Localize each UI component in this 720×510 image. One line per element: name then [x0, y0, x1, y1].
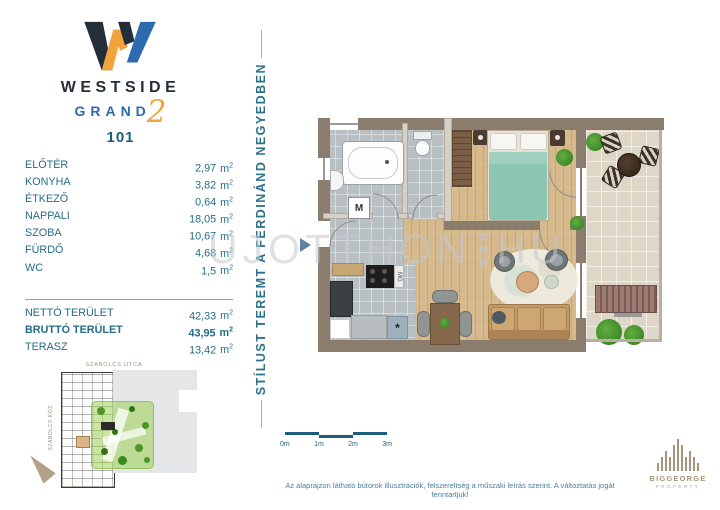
- dining-chair-top: [432, 290, 458, 303]
- total-row: NETTÓ TERÜLET 42,33m2: [25, 307, 233, 324]
- plant-bedroom: [556, 149, 573, 166]
- total-row: TERASZ 13,42m2: [25, 341, 233, 358]
- toilet-bowl: [415, 140, 430, 156]
- neighbor-block-notch: [179, 390, 198, 412]
- total-row: BRUTTÓ TERÜLET 43,95m2: [25, 324, 233, 341]
- washing-machine: M: [348, 197, 370, 219]
- room-value: 10,67m2: [189, 227, 233, 244]
- westside-w-logo-icon: [77, 20, 165, 76]
- unit-number: 101: [18, 129, 223, 146]
- street-label-top: SZABOLCS UTCA: [64, 362, 164, 368]
- developer-logo: BIGGEORGE PROPERTY: [640, 437, 716, 489]
- wardrobe: [452, 130, 472, 187]
- terrace-edge-right: [659, 130, 662, 342]
- brand-series-number: 2: [147, 94, 167, 130]
- kitchen-cabinet: [330, 319, 350, 339]
- table-divider: [25, 299, 233, 300]
- armchair-left: [494, 251, 515, 272]
- scale-label: 2m: [348, 441, 358, 448]
- highlighted-unit: [76, 436, 90, 448]
- tree-dot: [144, 457, 150, 463]
- tree-dot: [142, 422, 149, 429]
- plant-living: [570, 216, 584, 230]
- total-value: 42,33m2: [189, 307, 233, 324]
- bathtub-drain: [385, 160, 389, 164]
- flyer-page: WESTSIDE GRAND2 101 ELŐTÉR 2,97m2 KONYHA…: [0, 0, 720, 510]
- room-label: ELŐTÉR: [25, 159, 68, 176]
- scale-label: 1m: [314, 441, 324, 448]
- kitchen-shelf: [332, 263, 364, 276]
- pillow-left: [490, 133, 517, 150]
- developer-subtitle: PROPERTY: [640, 484, 716, 489]
- room-label: NAPPALI: [25, 210, 70, 227]
- plant-dining-table: [440, 318, 450, 328]
- room-label: FÜRDŐ: [25, 244, 63, 261]
- motto-line-bottom: [261, 400, 262, 428]
- scale-bar: 0m1m2m3m: [280, 432, 392, 448]
- tree-dot: [97, 407, 105, 415]
- fridge: *: [387, 316, 408, 339]
- room-row: NAPPALI 18,05m2: [25, 210, 233, 227]
- brand-series: GRAND: [74, 103, 150, 119]
- bed: [487, 130, 549, 221]
- room-row: KONYHA 3,82m2: [25, 176, 233, 193]
- room-list: ELŐTÉR 2,97m2 KONYHA 3,82m2 ÉTKEZŐ 0,64m…: [25, 159, 233, 279]
- watermark-arrow-icon: [300, 238, 311, 252]
- courtyard-garden: [91, 401, 154, 469]
- total-value: 43,95m2: [188, 324, 233, 341]
- bed-blanket: [489, 152, 547, 220]
- street-label-left: SZABOLCS KÖZ: [48, 405, 54, 451]
- dining-chair-left: [417, 311, 430, 337]
- tall-cabinet: [330, 281, 353, 317]
- developer-logo-icon: [640, 437, 716, 471]
- total-label: BRUTTÓ TERÜLET: [25, 324, 123, 341]
- brand-name: WESTSIDE: [18, 79, 223, 97]
- room-value: 4,68m2: [195, 244, 233, 261]
- room-value: 1,5m2: [201, 262, 233, 279]
- terrace-edge-bottom: [586, 339, 662, 342]
- north-arrow-icon: [24, 450, 56, 483]
- totals-list: NETTÓ TERÜLET 42,33m2 BRUTTÓ TERÜLET 43,…: [25, 307, 233, 358]
- total-label: NETTÓ TERÜLET: [25, 307, 114, 324]
- brand-block: WESTSIDE GRAND2 101: [18, 20, 223, 146]
- kitchen-counter: [351, 315, 387, 339]
- room-row: WC 1,5m2: [25, 262, 233, 279]
- room-label: WC: [25, 262, 43, 279]
- terrace-bench: [595, 285, 657, 313]
- coffee-table: [516, 271, 539, 293]
- tree-dot: [101, 448, 108, 455]
- armchair-right: [545, 249, 568, 271]
- room-row: FÜRDŐ 4,68m2: [25, 244, 233, 261]
- sofa-pillow: [492, 311, 506, 324]
- room-value: 2,97m2: [195, 159, 233, 176]
- scale-label: 0m: [280, 441, 290, 448]
- pillow-right: [520, 133, 547, 150]
- brand-subtitle: GRAND2: [18, 98, 223, 128]
- room-label: ÉTKEZŐ: [25, 193, 68, 210]
- floorplan: M MG *: [318, 113, 664, 356]
- stove: [366, 265, 394, 288]
- total-value: 13,42m2: [189, 341, 233, 358]
- scale-label: 3m: [382, 441, 392, 448]
- tree-dot: [135, 444, 143, 452]
- room-row: SZOBA 10,67m2: [25, 227, 233, 244]
- room-value: 0,64m2: [195, 193, 233, 210]
- motto-text: STÍLUST TEREMT A FERDINÁND NEGYEDBEN: [254, 63, 268, 395]
- tree-dot: [129, 406, 135, 412]
- plant-terrace-bottom-2: [624, 325, 644, 345]
- room-row: ELŐTÉR 2,97m2: [25, 159, 233, 176]
- dining-chair-right: [459, 311, 472, 337]
- toilet-tank: [413, 131, 432, 140]
- scale-bar-labels: 0m1m2m3m: [280, 441, 392, 448]
- developer-name: BIGGEORGE: [640, 474, 716, 483]
- room-label: SZOBA: [25, 227, 62, 244]
- room-row: ÉTKEZŐ 0,64m2: [25, 193, 233, 210]
- nightstand-right: [550, 130, 565, 146]
- scale-bar-segments: [285, 432, 387, 439]
- disclaimer-text: Az alaprajzon látható bútorok illusztrác…: [269, 481, 631, 499]
- room-value: 18,05m2: [189, 210, 233, 227]
- site-plan: SZABOLCS UTCA SZABOLCS KÖZ: [28, 360, 233, 502]
- room-value: 3,82m2: [195, 176, 233, 193]
- bathtub: [342, 141, 404, 185]
- area-table: ELŐTÉR 2,97m2 KONYHA 3,82m2 ÉTKEZŐ 0,64m…: [25, 159, 233, 358]
- unit-marker: [101, 422, 115, 430]
- total-label: TERASZ: [25, 341, 68, 358]
- bathtub-basin: [348, 147, 398, 179]
- room-label: KONYHA: [25, 176, 71, 193]
- nightstand-left: [473, 130, 488, 145]
- dishwasher: MG: [394, 265, 404, 288]
- motto-line-top: [261, 30, 262, 58]
- pouf: [544, 275, 559, 289]
- terrace-table: [617, 153, 641, 177]
- tree-dot: [118, 456, 127, 465]
- motto-rail: STÍLUST TEREMT A FERDINÁND NEGYEDBEN: [251, 30, 271, 428]
